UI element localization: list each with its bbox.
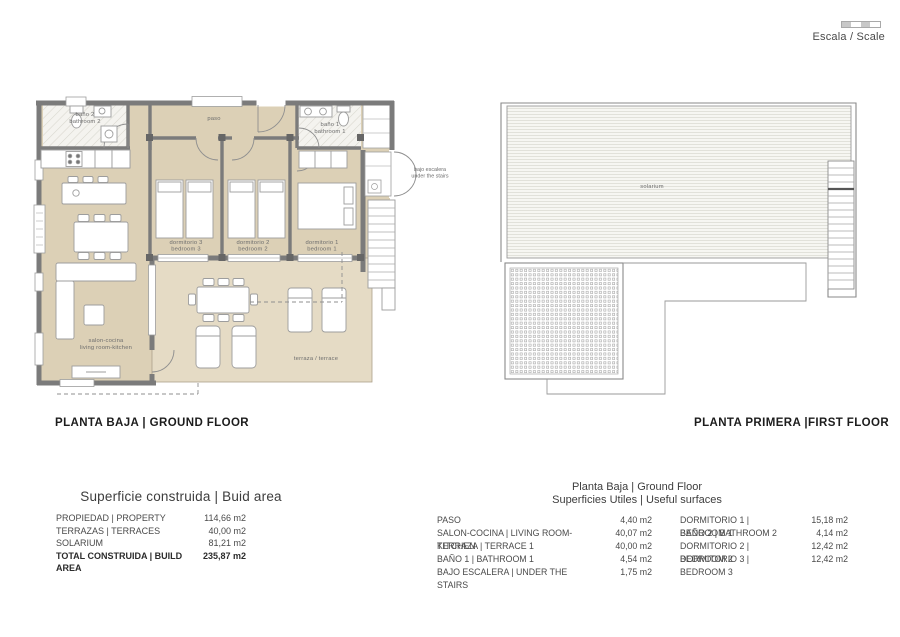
ground-floor-plan: baño 2 bathroom 2 paso baño 1 bathroom 1… [30,85,460,405]
under-stairs-label: bajo escalera [414,167,446,173]
scale-label: Escala / Scale [780,31,885,43]
useful-surfaces-left-column: PASO 4,40 m2 SALON-COCINA | LIVING ROOM-… [437,514,652,579]
coffee-table [84,305,104,325]
under-stairs-nook [365,152,391,196]
bathroom1-label: baño 1 [321,122,340,128]
solarium-deck [507,106,851,258]
table-row: PASO 4,40 m2 [437,514,652,527]
table-row: BAÑO 2 | BATHROOM 2 4,14 m2 [680,527,848,540]
svg-text:bedroom 3: bedroom 3 [171,247,201,253]
dining-table [74,215,128,260]
first-floor-title: PLANTA PRIMERA |FIRST FLOOR [694,417,889,429]
build-area-title: Superficie construida | Buid area [46,489,316,504]
svg-text:living room-kitchen: living room-kitchen [80,345,132,351]
bedroom3-label: dormitorio 3 [169,240,202,246]
paso-label: paso [207,116,220,122]
table-row: TERRAZAS | TERRACES 40,00 m2 [56,525,246,538]
sun-lounger [288,288,312,332]
terrace-label: terraza / terrace [294,356,338,362]
build-area-table: Superficie construida | Buid area PROPIE… [46,489,316,562]
useful-surfaces-right-column: DORMITORIO 1 | BEDROOM 1 15,18 m2 BAÑO 2… [680,514,848,566]
svg-text:bathroom 1: bathroom 1 [314,129,345,135]
table-row: DORMITORIO 2 | BEDROOM 2 12,42 m2 [680,540,848,553]
closet-top-right [363,105,390,148]
table-row: DORMITORIO 1 | BEDROOM 1 15,18 m2 [680,514,848,527]
first-floor-plan: solarium [480,85,900,415]
bedroom1-furniture [298,151,356,229]
svg-text:bedroom 2: bedroom 2 [238,247,268,253]
table-row: DORMITORIO 3 | BEDROOM 3 12,42 m2 [680,553,848,566]
first-floor-stairs [828,161,854,289]
table-row: BAJO ESCALERA | UNDER THE STAIRS 1,75 m2 [437,566,652,579]
pergola-grid [505,263,623,379]
bathroom2-label: baño 2 [76,112,95,118]
terrace-armchair [232,326,256,368]
table-row: SOLARIUM 81,21 m2 [56,537,246,550]
table-row: SALON-COCINA | LIVING ROOM-KITCHEN 40,07… [437,527,652,540]
useful-surfaces-table: Planta Baja | Ground Floor Superficies U… [430,481,858,506]
scale-bar-icon [841,21,881,28]
svg-text:bedroom 1: bedroom 1 [307,247,337,253]
table-row-total: TOTAL CONSTRUIDA | BUILD AREA 235,87 m2 [56,550,246,563]
bedroom2-label: dormitorio 2 [236,240,269,246]
living-room-label: salon-cocina [89,338,125,344]
stove [66,152,82,167]
useful-surfaces-title: Planta Baja | Ground Floor Superficies U… [430,481,844,506]
bedroom1-label: dormitorio 1 [305,240,338,246]
table-row: TERRAZA | TERRACE 1 40,00 m2 [437,540,652,553]
terrace-armchair [196,326,220,368]
table-row: PROPIEDAD | PROPERTY 114,66 m2 [56,512,246,525]
svg-text:bathroom 2: bathroom 2 [69,119,100,125]
table-row: BAÑO 1 | BATHROOM 1 4,54 m2 [437,553,652,566]
ground-floor-title: PLANTA BAJA | GROUND FLOOR [55,417,249,429]
svg-text:under the stairs: under the stairs [411,174,448,180]
kitchen [41,150,130,168]
build-area-rows: PROPIEDAD | PROPERTY 114,66 m2 TERRAZAS … [46,512,246,562]
solarium-label: solarium [640,184,664,190]
